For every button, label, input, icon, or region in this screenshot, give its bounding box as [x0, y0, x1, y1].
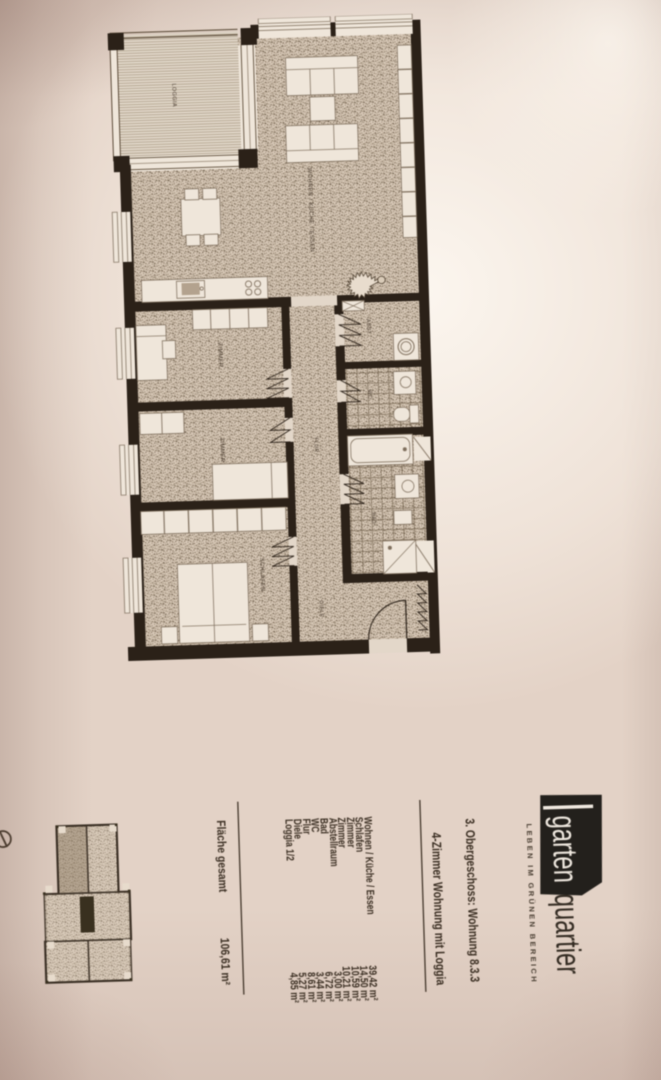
svg-text:LOGGIA: LOGGIA [170, 83, 177, 107]
svg-text:4,85 m²: 4,85 m² [287, 973, 300, 1004]
svg-text:BAD: BAD [370, 512, 376, 524]
svg-text:garten: garten [544, 815, 584, 884]
svg-text:SCHLAFEN: SCHLAFEN [258, 558, 265, 592]
svg-text:Loggia 1/2: Loggia 1/2 [282, 819, 296, 862]
svg-text:FLUR: FLUR [312, 437, 318, 452]
svg-text:Fläche gesamt: Fläche gesamt [214, 820, 229, 893]
svg-text:ZIMMER: ZIMMER [216, 342, 223, 367]
svg-text:3. Obergeschoss: Wohnung 8.3.3: 3. Obergeschoss: Wohnung 8.3.3 [462, 818, 482, 983]
svg-text:LEBEN IM GRÜNEN BEREICH: LEBEN IM GRÜNEN BEREICH [525, 823, 539, 984]
svg-text:WC: WC [366, 390, 372, 400]
svg-text:quartier: quartier [547, 893, 588, 975]
svg-text:106,61 m²: 106,61 m² [217, 938, 231, 986]
svg-text:DIELE: DIELE [318, 600, 325, 617]
svg-text:4-Zimmer Wohnung mit Loggia: 4-Zimmer Wohnung mit Loggia [429, 832, 448, 986]
svg-text:ZIMMER: ZIMMER [218, 437, 225, 462]
svg-text:ABST.: ABST. [365, 319, 372, 336]
